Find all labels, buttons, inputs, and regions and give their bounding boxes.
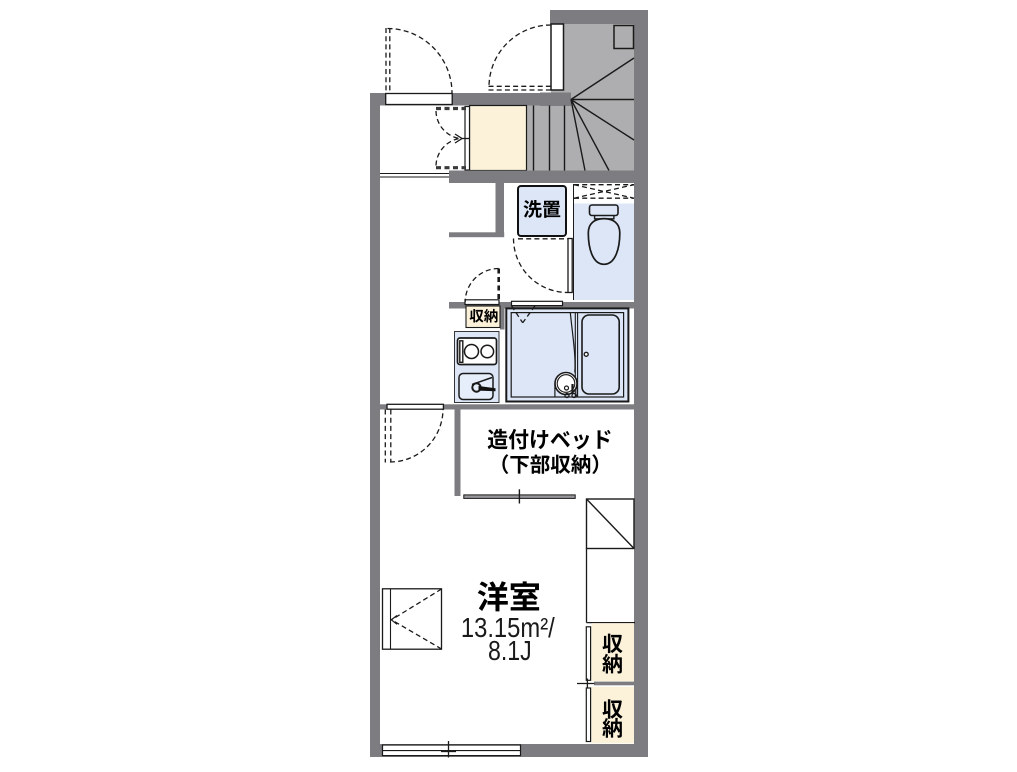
svg-text:8.1J: 8.1J (488, 636, 532, 666)
